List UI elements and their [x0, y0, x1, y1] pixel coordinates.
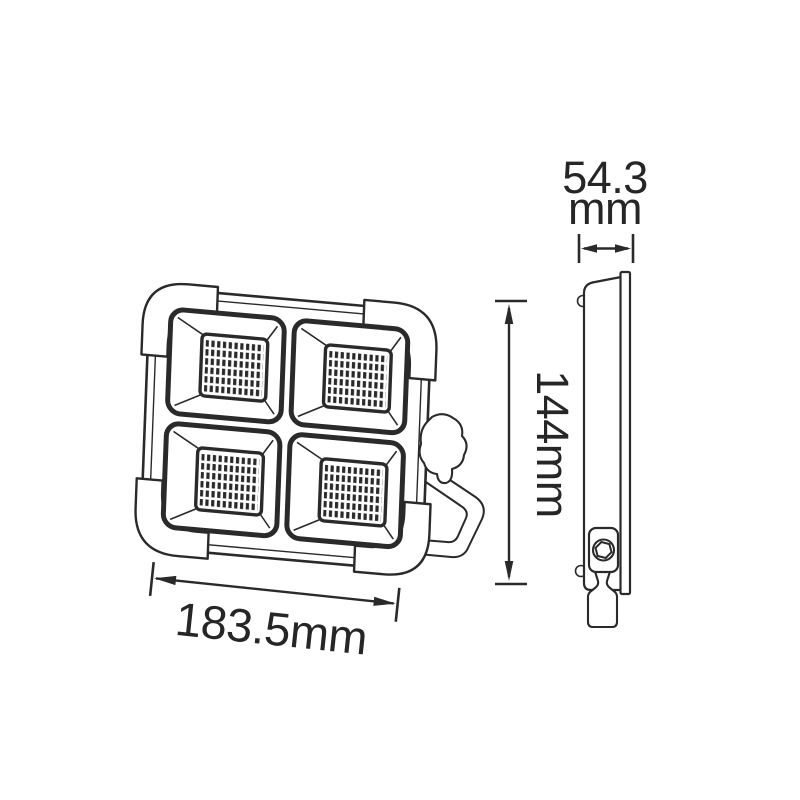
led-module-top-left — [167, 309, 284, 423]
diagram-canvas: 54.3 mm 144mm 183.5mm — [0, 0, 800, 800]
width-dimension-label: 183.5mm — [173, 592, 370, 665]
height-dimension-label: 144mm — [527, 370, 578, 518]
dimension-drawing: 54.3 mm 144mm 183.5mm — [0, 0, 800, 800]
depth-dimension: 54.3 mm — [562, 152, 648, 263]
side-view — [576, 272, 631, 627]
width-dimension: 183.5mm — [145, 562, 399, 667]
arrowhead-down-icon — [505, 561, 514, 581]
front-view — [134, 280, 484, 578]
extension-tick-right — [396, 588, 400, 622]
extension-tick-left — [150, 562, 154, 596]
arrowhead-up-icon — [505, 304, 514, 324]
led-module-bottom-left — [163, 423, 280, 537]
led-module-bottom-right — [286, 434, 403, 548]
height-dimension: 144mm — [495, 301, 578, 584]
depth-dimension-unit: mm — [568, 183, 642, 234]
led-module-top-right — [291, 320, 408, 434]
arrowhead-left-icon — [581, 244, 597, 253]
side-back-plate — [621, 272, 631, 594]
hex-bolt-icon — [596, 542, 612, 558]
arrowhead-right-icon — [615, 244, 631, 253]
